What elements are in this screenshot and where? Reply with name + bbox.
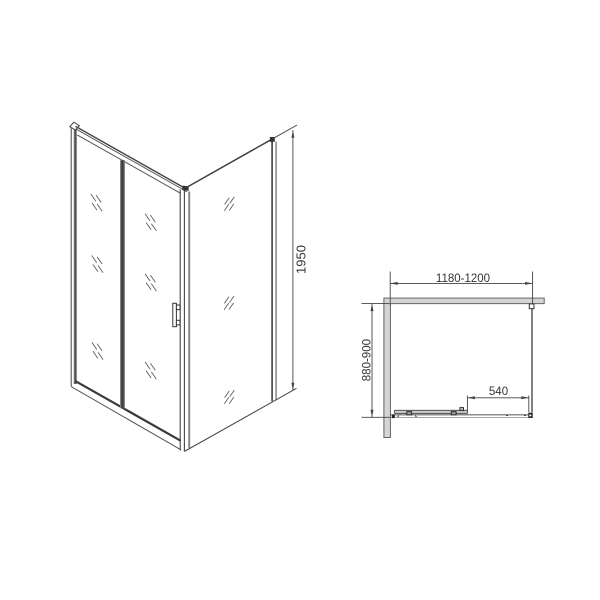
svg-text:1180-1200: 1180-1200 xyxy=(436,273,490,285)
svg-text:540: 540 xyxy=(489,386,508,398)
svg-text:880-900: 880-900 xyxy=(362,339,374,381)
svg-text:1950: 1950 xyxy=(294,245,309,274)
